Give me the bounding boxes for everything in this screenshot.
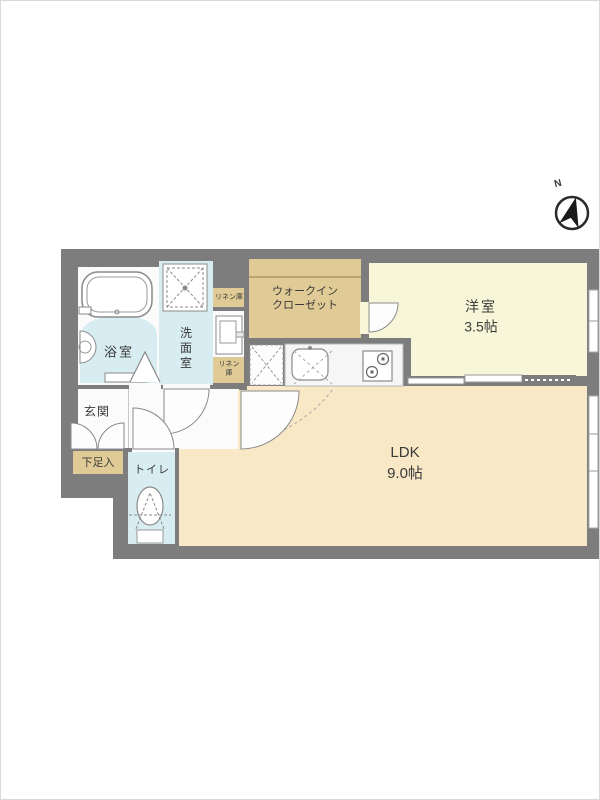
western-room-floor-lower: [411, 338, 587, 376]
linen-upper-label: リネン庫: [215, 292, 243, 302]
washroom-label: 洗面室: [178, 327, 195, 372]
ldk-floor-extension: [179, 449, 247, 546]
shoe-box-label: 下足入: [82, 454, 115, 470]
entrance-label: 玄関: [84, 403, 110, 420]
bath-label: 浴室: [104, 342, 134, 361]
walk-in-closet-label: ウォークイン クローゼット: [272, 285, 338, 314]
north-compass-icon: [556, 195, 588, 229]
entrance-step-line: [128, 388, 129, 448]
floorplan-image: 浴室 洗面室 リネン庫 リネン 庫 ウォークイン クローゼット 洋室 3.5帖 …: [0, 0, 600, 800]
western-room-label: 洋室 3.5帖: [464, 297, 497, 338]
north-label: N: [553, 178, 563, 190]
wall-notch: [61, 498, 113, 559]
ldk-label: LDK 9.0帖: [387, 442, 423, 484]
linen-lower-label: リネン 庫: [219, 360, 240, 378]
toilet-label: トイレ: [134, 461, 170, 477]
vanity-area: [213, 311, 244, 357]
